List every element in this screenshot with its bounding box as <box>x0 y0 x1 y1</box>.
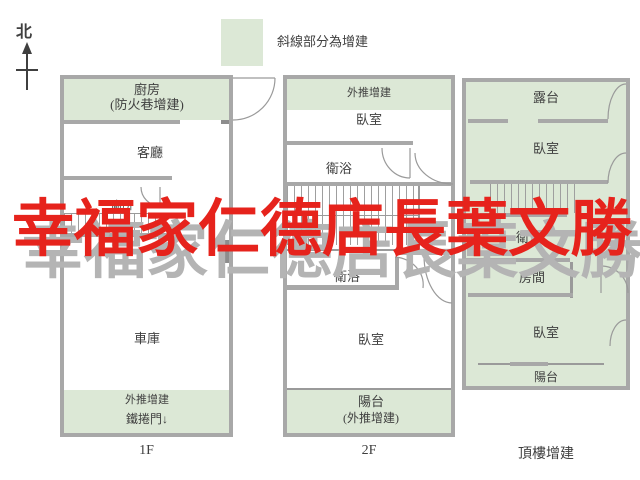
watermark-char: 家 <box>136 197 198 263</box>
wall-segment <box>64 120 180 124</box>
door-arc <box>233 78 275 120</box>
watermark-char: 幸 <box>12 197 74 263</box>
watermark-char: 店 <box>322 197 384 263</box>
room-terrace-label: 露台 <box>533 90 559 105</box>
north-label: 北 <box>16 18 32 42</box>
caption-2f: 2F <box>283 443 455 459</box>
wall-segment <box>64 176 172 180</box>
floorplan-page: 北 斜線部分為增建 廚房 (防火巷增建) 客廳 廁所 <box>0 0 640 480</box>
watermark-char: 仁 <box>198 197 260 263</box>
room-bedroom-top-label: 臥室 <box>356 112 382 127</box>
pushout-1f-label: 外推增建 <box>125 394 169 407</box>
wall-segment <box>221 120 229 124</box>
caption-roof: 頂樓增建 <box>462 443 630 463</box>
room-bath-top-label: 衛浴 <box>326 161 352 176</box>
watermark-char: 葉 <box>446 197 508 263</box>
room-bedroom-bottom-label: 臥室 <box>358 332 384 347</box>
watermark-char: 文 <box>508 197 570 263</box>
watermark-char: 福 <box>74 197 136 263</box>
north-arrow-icon <box>12 40 42 94</box>
balcony-2f-sub: (外推增建) <box>343 411 399 426</box>
room-roof-bedroom-top-label: 臥室 <box>533 141 559 156</box>
watermark-char: 長 <box>384 197 446 263</box>
room-living-label: 客廳 <box>137 145 163 160</box>
wall-segment <box>468 293 573 297</box>
watermark-char: 德 <box>260 197 322 263</box>
wall-segment <box>468 119 508 123</box>
wall-segment <box>287 141 413 145</box>
room-kitchen-label: 廚房 (防火巷增建) <box>110 82 184 112</box>
watermark-char: 勝 <box>570 197 632 263</box>
room-kitchen-sub: (防火巷增建) <box>110 97 184 112</box>
pushout-2f-label: 外推增建 <box>347 87 391 100</box>
room-garage-label: 車庫 <box>134 331 160 346</box>
wall-segment <box>510 362 548 366</box>
legend-addition-swatch <box>221 19 263 66</box>
caption-1f: 1F <box>60 443 233 459</box>
room-roof-bedroom-bottom-label: 臥室 <box>533 325 559 340</box>
wall-segment <box>538 119 608 123</box>
legend-text: 斜線部分為增建 <box>277 31 368 50</box>
balcony-2f-label: 陽台 <box>358 394 384 409</box>
room-kitchen-name: 廚房 <box>110 82 184 97</box>
watermark-text: 幸福家仁德店長葉文勝 <box>12 197 630 267</box>
room-roof-balcony-label: 陽台 <box>534 370 558 385</box>
roller-door-label: 鐵捲門↓ <box>126 412 168 427</box>
